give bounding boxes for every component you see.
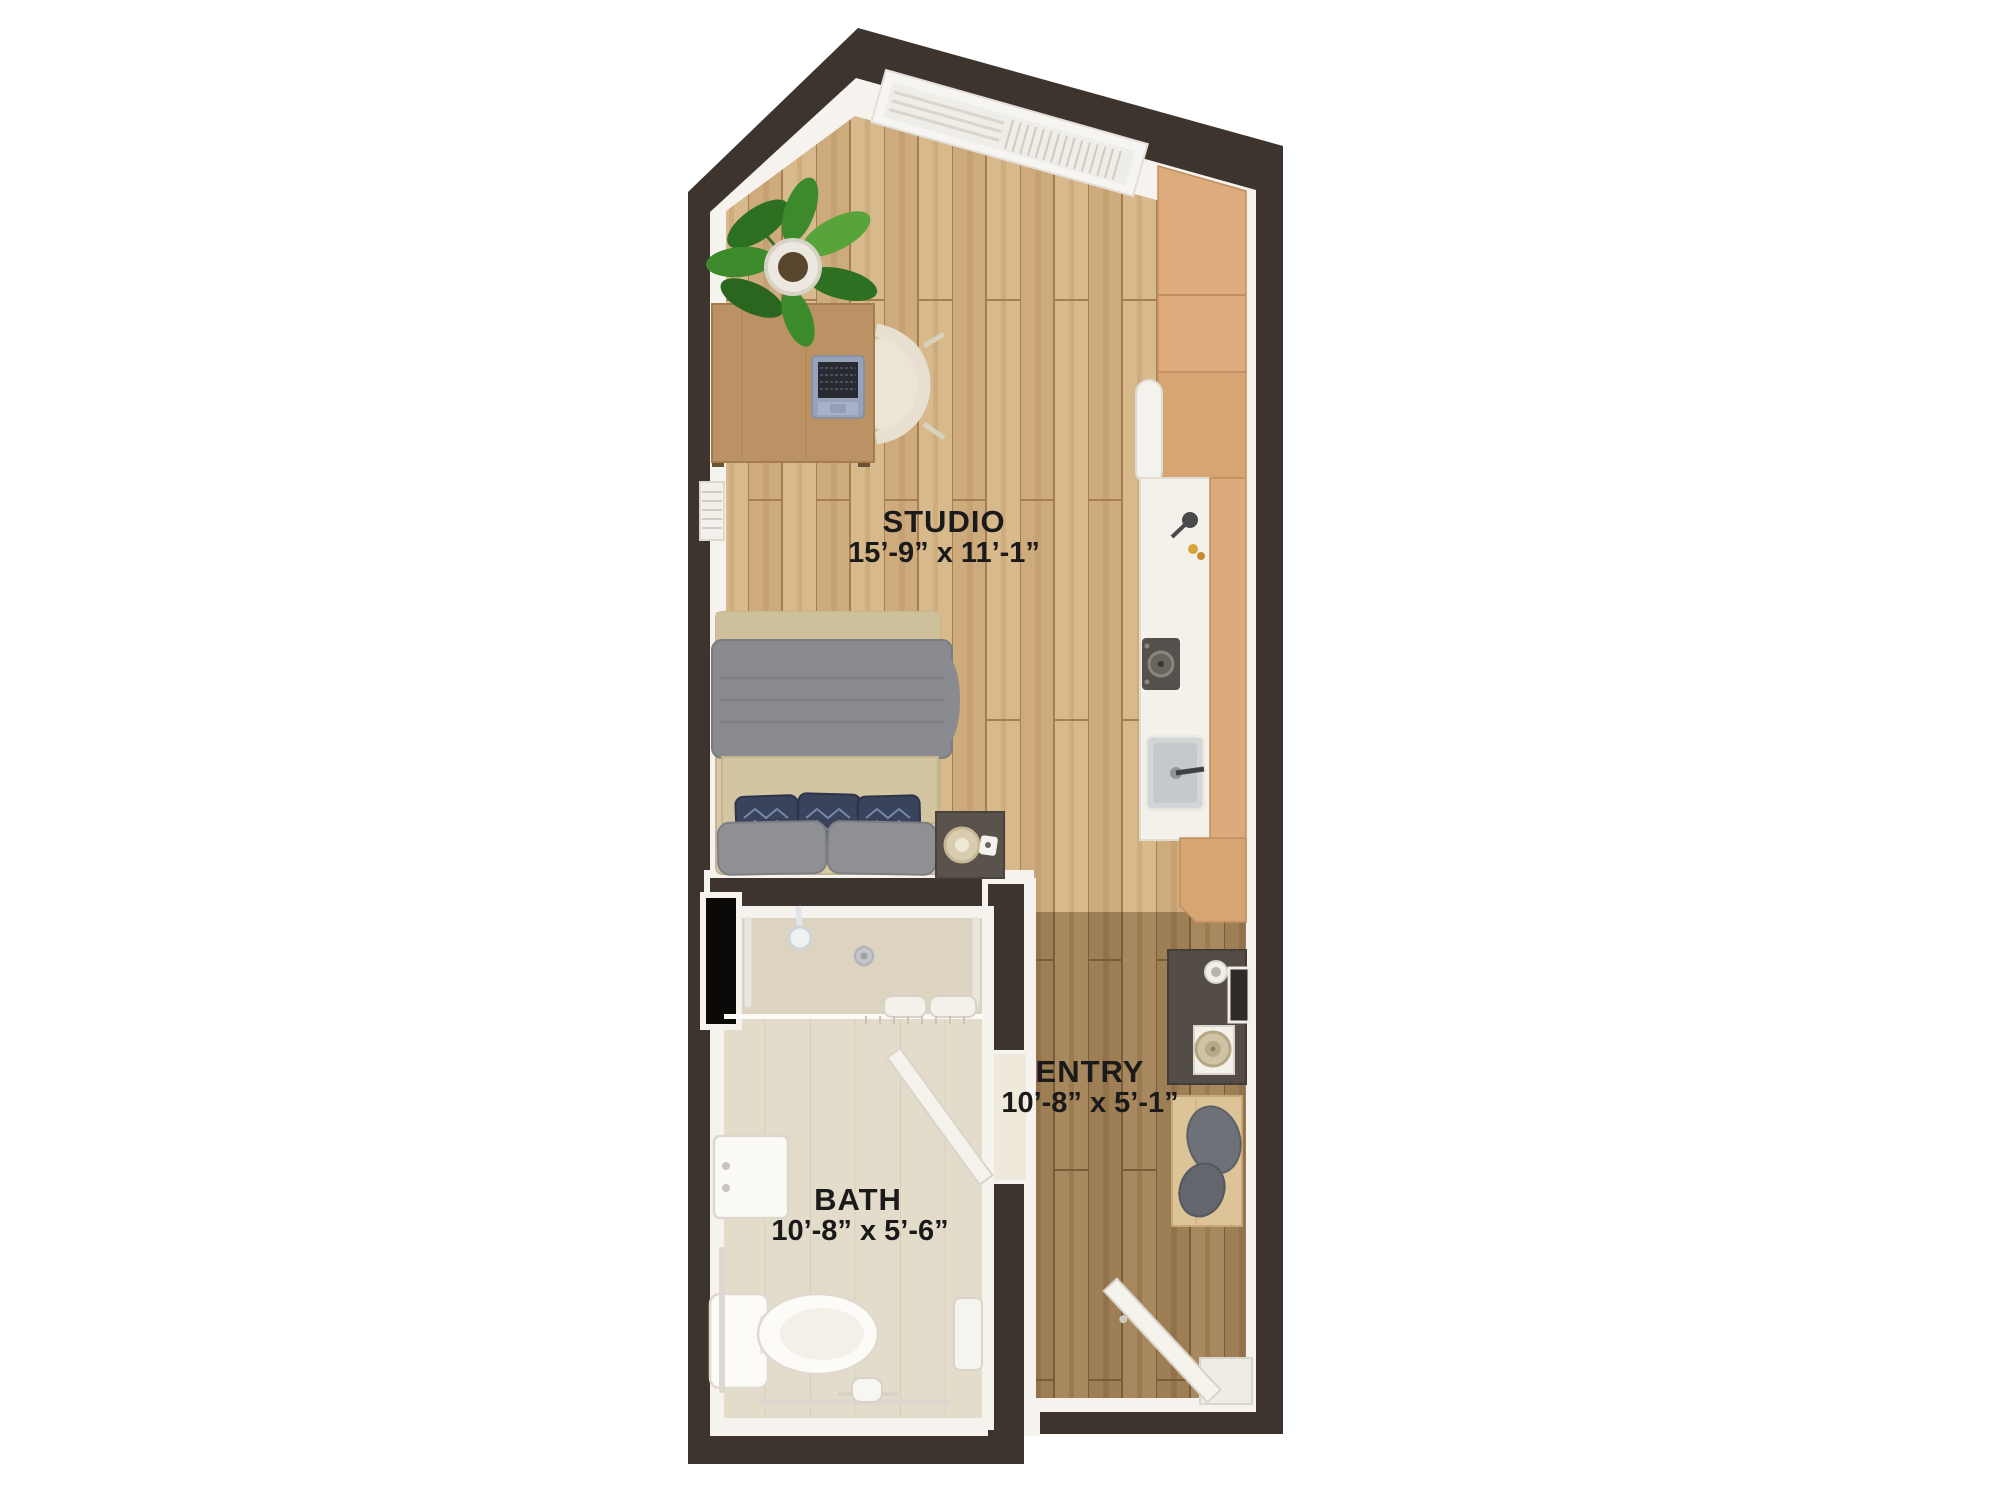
plant-soil [778, 252, 808, 282]
console-table [1168, 950, 1249, 1084]
bathroom-sink [714, 1136, 788, 1218]
cooktop [1142, 638, 1180, 690]
laptop-trackpad [830, 404, 846, 413]
wall-towel [954, 1298, 982, 1370]
wall-radiator [700, 482, 724, 540]
bathroom [700, 870, 1036, 1436]
shower-hose [798, 906, 800, 928]
bath-dimensions: 10’-8” x 5’-6” [771, 1215, 948, 1247]
entry-label: ENTRY [1036, 1054, 1145, 1089]
wall-niche [706, 898, 736, 1024]
tray [1229, 968, 1249, 1022]
bath-label: BATH [814, 1182, 902, 1217]
refrigerator [1136, 380, 1162, 484]
nightstand [936, 812, 1004, 878]
sleeping-pillow [718, 821, 827, 875]
shower-head [789, 927, 811, 949]
towel [930, 996, 976, 1017]
entry-dimensions: 10’-8” x 5’-1” [1001, 1087, 1178, 1119]
laptop [812, 356, 864, 418]
floor-plan: STUDIO 15’-9” x 11’-1” ENTRY 10’-8” x 5’… [0, 0, 2000, 1500]
floor-plan-canvas: STUDIO 15’-9” x 11’-1” ENTRY 10’-8” x 5’… [0, 0, 2000, 1500]
studio-dimensions: 15’-9” x 11’-1” [848, 537, 1040, 569]
towel [884, 996, 926, 1017]
upper-cabinet [1158, 166, 1246, 372]
bed [712, 612, 960, 875]
soap-bottle [1188, 544, 1198, 554]
upper-cabinet-2 [1158, 372, 1246, 478]
sleeping-pillow [828, 821, 937, 875]
base-cabinet [1180, 838, 1246, 922]
kitchen-sink [1146, 736, 1204, 810]
duvet [712, 640, 960, 758]
studio-label: STUDIO [882, 504, 1005, 539]
bench [1172, 1096, 1248, 1226]
